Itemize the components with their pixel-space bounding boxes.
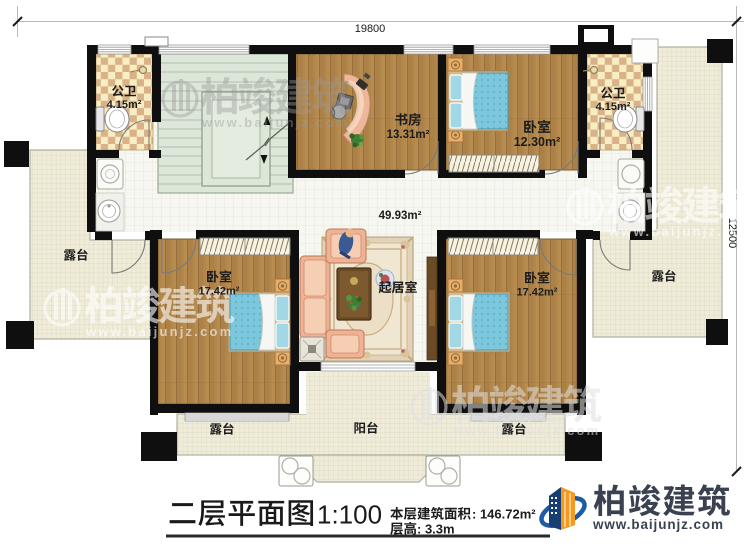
svg-text:www.baijunjz.com: www.baijunjz.com (608, 224, 750, 239)
svg-text:www.baijunjz.com: www.baijunjz.com (85, 324, 233, 339)
svg-text:13.31m²: 13.31m² (387, 129, 430, 141)
svg-text:1:100: 1:100 (317, 500, 382, 530)
svg-text:www.baijunjz.com: www.baijunjz.com (201, 115, 349, 130)
svg-text:19800: 19800 (355, 23, 386, 35)
svg-text:12.30m²: 12.30m² (514, 135, 561, 149)
svg-text:www.baijunjz.com: www.baijunjz.com (452, 423, 600, 438)
svg-text:17.42m²: 17.42m² (517, 287, 558, 299)
svg-text:49.93m²: 49.93m² (379, 210, 422, 222)
svg-text:17.42m²: 17.42m² (199, 286, 240, 298)
svg-text:www.baijunjz.com: www.baijunjz.com (592, 517, 724, 532)
svg-text:4.15m²: 4.15m² (596, 101, 631, 113)
svg-text:4.15m²: 4.15m² (107, 99, 142, 111)
svg-text:: 3.3m: : 3.3m (417, 522, 455, 537)
svg-text:: 146.72m²: : 146.72m² (472, 507, 536, 522)
